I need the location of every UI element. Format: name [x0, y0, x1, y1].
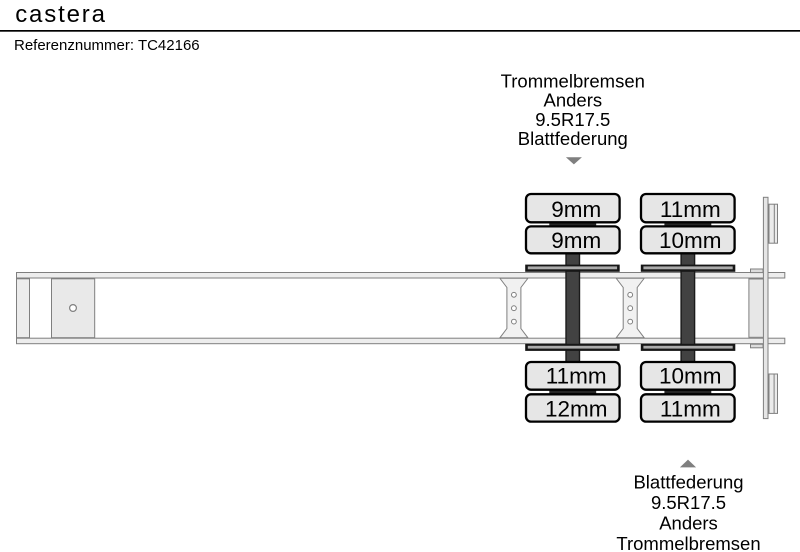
svg-text:Blattfederung: Blattfederung: [518, 128, 628, 149]
svg-text:Anders: Anders: [659, 512, 718, 533]
svg-text:10mm: 10mm: [659, 364, 722, 389]
svg-text:9.5R17.5: 9.5R17.5: [651, 492, 726, 513]
svg-text:Trommelbremsen: Trommelbremsen: [616, 533, 760, 552]
svg-text:11mm: 11mm: [546, 364, 607, 389]
svg-text:11mm: 11mm: [660, 197, 721, 222]
svg-text:Trommelbremsen: Trommelbremsen: [501, 71, 645, 92]
svg-text:9.5R17.5: 9.5R17.5: [535, 109, 610, 130]
svg-text:castera: castera: [15, 1, 107, 28]
svg-text:9mm: 9mm: [551, 197, 601, 222]
svg-text:Referenznummer: TC42166: Referenznummer: TC42166: [14, 37, 200, 54]
svg-text:12mm: 12mm: [545, 396, 608, 421]
svg-text:9mm: 9mm: [551, 228, 601, 253]
svg-text:Anders: Anders: [543, 90, 602, 111]
svg-text:11mm: 11mm: [660, 396, 721, 421]
svg-text:Blattfederung: Blattfederung: [633, 472, 743, 493]
svg-text:10mm: 10mm: [659, 228, 722, 253]
